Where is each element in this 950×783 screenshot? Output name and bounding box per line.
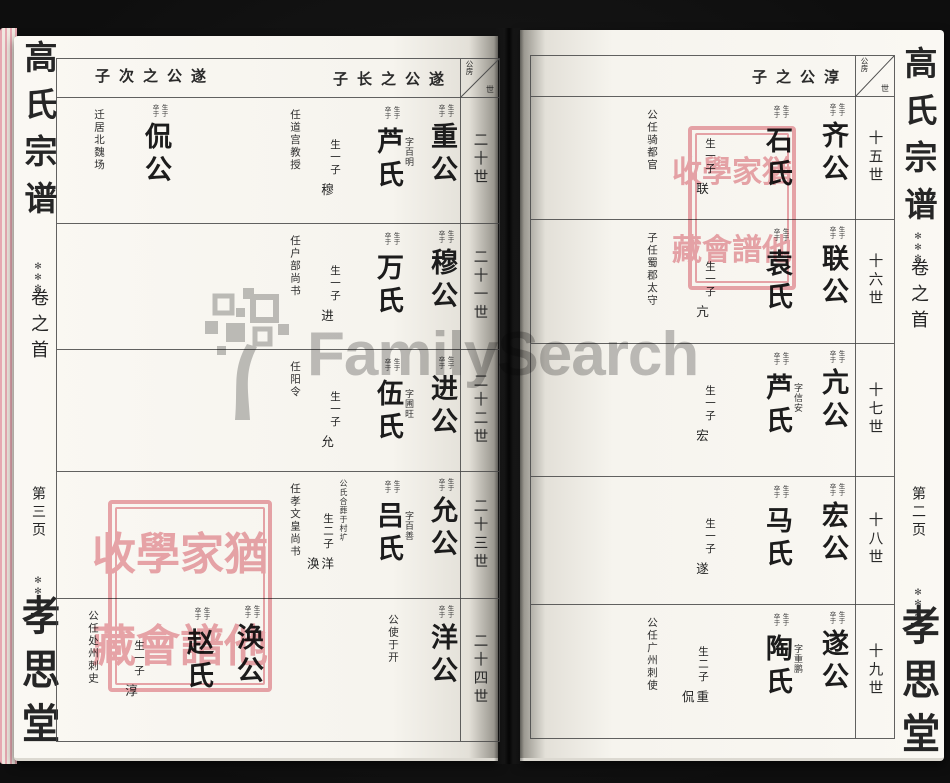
left-page-margin: 高氏宗谱 ✻✻✻ 卷之首 第三页 ✻✻✻ 孝思堂 (18, 0, 58, 783)
seal-character: 譜 (732, 225, 762, 269)
seal-character: 他 (762, 225, 792, 269)
seal-character: 會 (702, 225, 732, 269)
seal-character: 家 (732, 147, 762, 191)
wife-name: 万氏 (372, 253, 403, 319)
table-row: 二十二世 卒于生于 进公 字圃旺 卒于生于 伍氏 生一子允 任阳令 (57, 349, 499, 472)
birth-death-labels: 卒于生于 (772, 613, 788, 626)
son-names: 进 (321, 305, 336, 324)
birth-death-labels: 卒于生于 (828, 103, 844, 116)
husband-name: 穆公 (426, 248, 457, 314)
volume-label: 卷之首 (25, 288, 51, 366)
table-row: 十九世 卒于生于 遂公 字重鹏 卒于生于 陶氏 生二子侃重 公任广州刺使 (531, 604, 894, 738)
table-row: 十八世 卒于生于 宏公 卒于生于 马氏 生一子遂 (531, 476, 894, 605)
son-names: 侃重 (682, 686, 711, 705)
page-number: 第二页 (908, 486, 928, 540)
birth-death-labels: 卒于生于 (772, 352, 788, 365)
husband-name: 允公 (426, 496, 457, 562)
office-note: 子任蜀郡太守 (645, 232, 660, 307)
office-note: 任孝文皇尚书 (288, 483, 303, 558)
seal-character: 猶 (224, 518, 268, 582)
sons-note: 生一子宏 (703, 385, 718, 444)
birth-death-labels: 卒于生于 (828, 611, 844, 624)
lineage-header: 子之公淳 (752, 66, 848, 87)
header-row: 子之公淳 公房 世 (531, 56, 894, 97)
hall-name: 孝思堂 (891, 604, 946, 766)
courtesy-name: 字重鹏 (791, 644, 804, 674)
birth-death-labels: 卒于生于 (437, 478, 453, 491)
generation-label: 二十四世 (460, 598, 499, 741)
courtesy-name: 字百善 (402, 511, 415, 541)
generation-label: 十九世 (855, 604, 894, 738)
birth-death-labels: 卒于生于 (437, 230, 453, 243)
birth-death-labels: 卒于生于 (151, 104, 167, 117)
second-husband-name: 侃公 (140, 122, 171, 188)
office-note: 公任广州刺使 (645, 617, 660, 692)
seal-character: 藏 (92, 610, 136, 674)
wife-name: 吕氏 (372, 501, 403, 567)
office-note: 任道宫教授 (288, 109, 303, 172)
courtesy-name: 字百明 (402, 137, 415, 167)
seal-character: 學 (702, 147, 732, 191)
husband-name: 重公 (426, 122, 457, 188)
birth-death-labels: 卒于生于 (383, 480, 399, 493)
son-names: 允 (321, 431, 336, 450)
husband-name: 宏公 (817, 501, 848, 567)
seal-character: 猶 (762, 147, 792, 191)
seal-character: 收 (92, 518, 136, 582)
son-names: 亢 (696, 301, 711, 320)
header-row: 子次之公遂 子长之公遂 公房 世 (57, 59, 499, 98)
son-names: 穆 (321, 179, 336, 198)
wife-name: 芦氏 (372, 127, 403, 193)
second-husband-name: 洋公 (426, 623, 457, 689)
birth-death-labels: 卒于生于 (383, 358, 399, 371)
book-title: 高氏宗谱 (14, 40, 62, 228)
husband-name: 遂公 (817, 629, 848, 695)
birth-death-labels: 卒于生于 (772, 105, 788, 118)
office-note: 任户部尚书 (288, 235, 303, 298)
page-number: 第三页 (28, 486, 48, 540)
table-row: 二十一世 卒于生于 穆公 卒于生于 万氏 生一子进 任户部尚书 (57, 223, 499, 350)
generation-label: 二十二世 (460, 349, 499, 471)
second-office-note: 迁居北魏场 (92, 109, 107, 172)
collection-seal: 猶他家譜學會收藏 (108, 500, 272, 692)
son-names: 宏 (696, 425, 711, 444)
lineage-header-second-son: 子次之公遂 (95, 65, 215, 86)
book-title: 高氏宗谱 (894, 46, 942, 234)
wife-name: 陶氏 (761, 634, 792, 700)
son-names: 涣洋 (307, 553, 336, 572)
wife-name: 芦氏 (761, 373, 792, 439)
courtesy-name: 字信安 (791, 383, 804, 413)
birth-death-labels: 卒于生于 (437, 356, 453, 369)
birth-death-labels: 卒于生于 (828, 226, 844, 239)
right-page-margin: 高氏宗谱 ✻✻✻ 卷之首 第二页 ✻✻✻ 孝思堂 (898, 0, 938, 783)
office-note: 公任骑都官 (645, 109, 660, 172)
birth-death-labels: 卒于生于 (383, 232, 399, 245)
sons-note: 生二子涣洋 (314, 513, 343, 572)
husband-name: 联公 (817, 244, 848, 310)
husband-name: 亢公 (817, 368, 848, 434)
corner-cell: 公房 世 (460, 59, 499, 97)
corner-branch-label: 公房 (860, 57, 868, 72)
birth-death-labels: 卒于生于 (437, 605, 453, 618)
generation-label: 二十三世 (460, 471, 499, 598)
volume-label: 卷之首 (905, 258, 931, 336)
seal-character: 藏 (672, 225, 702, 269)
seal-character: 學 (136, 518, 180, 582)
table-row: 十七世 卒于生于 亢公 字信安 卒于生于 芦氏 生一子宏 (531, 343, 894, 477)
sons-note: 生一子遂 (703, 518, 718, 577)
generation-label: 十六世 (855, 219, 894, 343)
birth-death-labels: 卒于生于 (437, 104, 453, 117)
seal-character: 收 (672, 147, 702, 191)
birth-death-labels: 卒于生于 (828, 350, 844, 363)
table-row: 二十世 卒于生于 重公 字百明 卒于生于 芦氏 生一子穆 任道宫教授 卒于生于 … (57, 97, 499, 224)
wife-name: 伍氏 (372, 379, 403, 445)
collection-seal: 猶他家譜學會收藏 (688, 126, 796, 290)
wife-name: 马氏 (761, 506, 792, 572)
seal-character: 會 (136, 610, 180, 674)
office-note: 任阳令 (288, 361, 303, 399)
birth-death-labels: 卒于生于 (828, 483, 844, 496)
husband-name: 进公 (426, 374, 457, 440)
generation-label: 二十一世 (460, 223, 499, 349)
corner-generation-label: 世 (486, 84, 494, 95)
corner-branch-label: 公房 (465, 60, 473, 75)
birth-death-labels: 卒于生于 (383, 106, 399, 119)
birth-death-labels: 卒于生于 (772, 485, 788, 498)
seal-character: 家 (180, 518, 224, 582)
generation-label: 十五世 (855, 96, 894, 219)
husband-name: 齐公 (817, 121, 848, 187)
corner-generation-label: 世 (881, 83, 889, 94)
sons-note: 生一子进 (328, 265, 343, 324)
sons-note: 生二子侃重 (689, 646, 718, 705)
sons-note: 生一子允 (328, 391, 343, 450)
lineage-header-eldest-son: 子长之公遂 (333, 68, 453, 89)
generation-label: 十八世 (855, 476, 894, 604)
book-scan: 高氏宗谱 ✻✻✻ 卷之首 第三页 ✻✻✻ 孝思堂 高氏宗谱 ✻✻✻ 卷之首 第二… (0, 0, 950, 783)
second-office-note: 公使于开 (386, 614, 401, 664)
sons-note: 生一子穆 (328, 139, 343, 198)
seal-character: 譜 (180, 610, 224, 674)
seal-character: 他 (224, 610, 268, 674)
corner-cell: 公房 世 (855, 56, 894, 96)
generation-label: 二十世 (460, 97, 499, 223)
courtesy-name: 字圃旺 (402, 389, 415, 419)
son-names: 遂 (696, 558, 711, 577)
generation-label: 十七世 (855, 343, 894, 476)
